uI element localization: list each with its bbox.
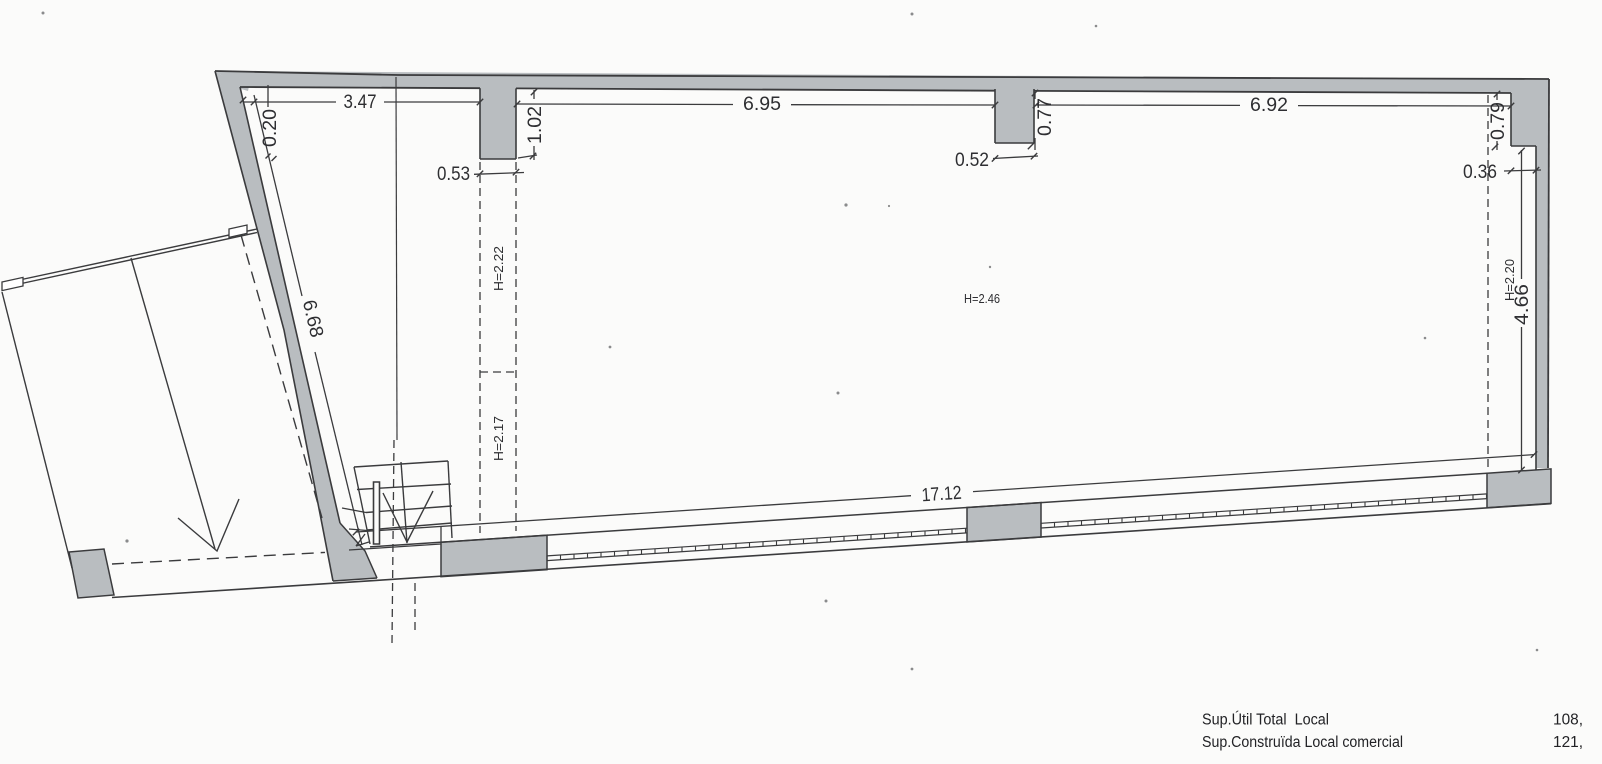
svg-text:121,: 121, (1553, 734, 1583, 751)
svg-text:1.02: 1.02 (525, 106, 546, 144)
svg-text:Sup.Útil Total Local: Sup.Útil Total Local (1202, 712, 1329, 729)
svg-text:H=2.17: H=2.17 (492, 416, 506, 461)
svg-text:3.47: 3.47 (344, 92, 377, 113)
svg-text:H=2.22: H=2.22 (492, 246, 506, 291)
svg-text:H=2.46: H=2.46 (964, 292, 1000, 306)
svg-text:0.36: 0.36 (1463, 162, 1497, 183)
svg-text:108,: 108, (1553, 712, 1583, 729)
svg-text:0.52: 0.52 (955, 150, 989, 171)
svg-text:6.92: 6.92 (1250, 95, 1288, 116)
svg-text:0.77: 0.77 (1035, 98, 1056, 136)
svg-text:Sup.Construïda Local comercial: Sup.Construïda Local comercial (1202, 734, 1403, 751)
svg-text:0.53: 0.53 (437, 164, 470, 185)
svg-text:H=2.20: H=2.20 (1503, 259, 1517, 301)
svg-text:6.95: 6.95 (743, 94, 781, 115)
svg-text:0.20: 0.20 (260, 109, 281, 147)
svg-text:0.79: 0.79 (1488, 102, 1509, 140)
svg-text:17.12: 17.12 (921, 483, 962, 507)
